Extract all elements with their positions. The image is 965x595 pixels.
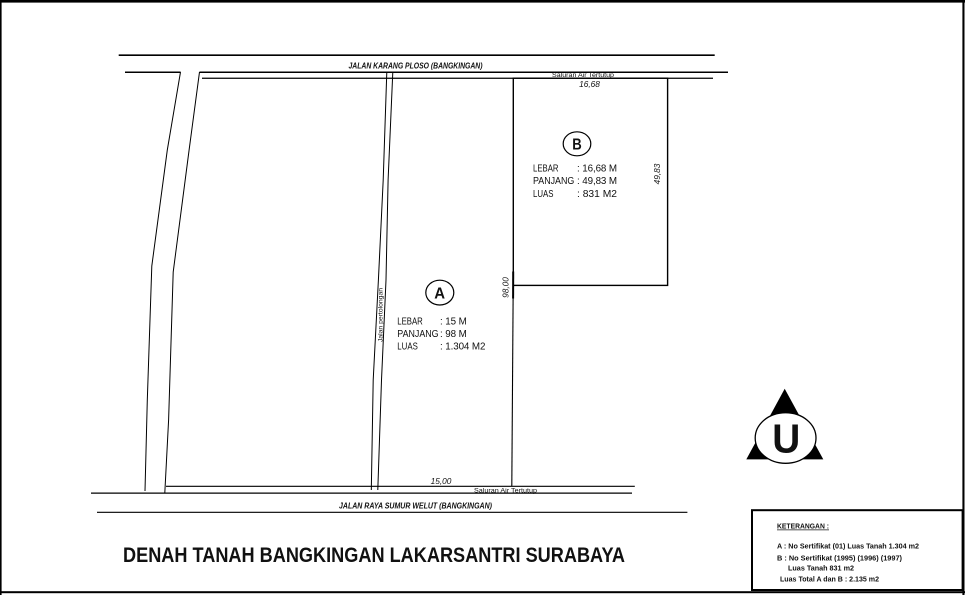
svg-text:: 49,83 M: : 49,83 M (577, 176, 617, 187)
svg-text:49,83: 49,83 (652, 163, 662, 184)
svg-text:98,00: 98,00 (501, 277, 511, 298)
svg-text:PANJANG: PANJANG (397, 329, 438, 340)
svg-text:Luas Total A dan B : 2.135 m2: Luas Total A dan B : 2.135 m2 (780, 574, 879, 583)
svg-text:LEBAR: LEBAR (533, 163, 559, 174)
svg-text:A: A (434, 286, 445, 303)
svg-text:PANJANG: PANJANG (533, 176, 574, 187)
svg-text:B: B (572, 137, 582, 154)
svg-text:: 98 M: : 98 M (440, 329, 467, 340)
svg-text:JALAN KARANG PLOSO (BANGKINGAN: JALAN KARANG PLOSO (BANGKINGAN) (349, 62, 483, 71)
svg-text:: 831 M2: : 831 M2 (577, 189, 617, 200)
svg-text:: 16,68 M: : 16,68 M (577, 163, 617, 174)
svg-text:DENAH TANAH BANGKINGAN LAKARSA: DENAH TANAH BANGKINGAN LAKARSANTRI SURAB… (123, 543, 625, 567)
svg-text:Jalan pertolongan: Jalan pertolongan (378, 288, 385, 342)
svg-text:: 15 M: : 15 M (440, 316, 467, 327)
svg-text:LUAS: LUAS (533, 189, 554, 200)
svg-text:LUAS: LUAS (397, 342, 418, 353)
svg-text:U: U (772, 415, 800, 461)
svg-text:15,00: 15,00 (431, 476, 452, 486)
svg-text:A : No Sertifikat (01) Luas Ta: A : No Sertifikat (01) Luas Tanah 1.304 … (777, 541, 919, 550)
svg-text:Luas Tanah 831 m2: Luas Tanah 831 m2 (788, 563, 854, 572)
svg-text:LEBAR: LEBAR (397, 316, 423, 327)
svg-text:JALAN RAYA SUMUR WELUT (BANGKI: JALAN RAYA SUMUR WELUT (BANGKINGAN) (339, 501, 492, 510)
svg-text:KETERANGAN :: KETERANGAN : (777, 522, 829, 531)
svg-text:: 1.304 M2: : 1.304 M2 (440, 342, 485, 353)
svg-text:B : No Sertifikat (1995) (1996: B : No Sertifikat (1995) (1996) (1997) (777, 554, 903, 563)
svg-text:16,68: 16,68 (579, 79, 600, 89)
